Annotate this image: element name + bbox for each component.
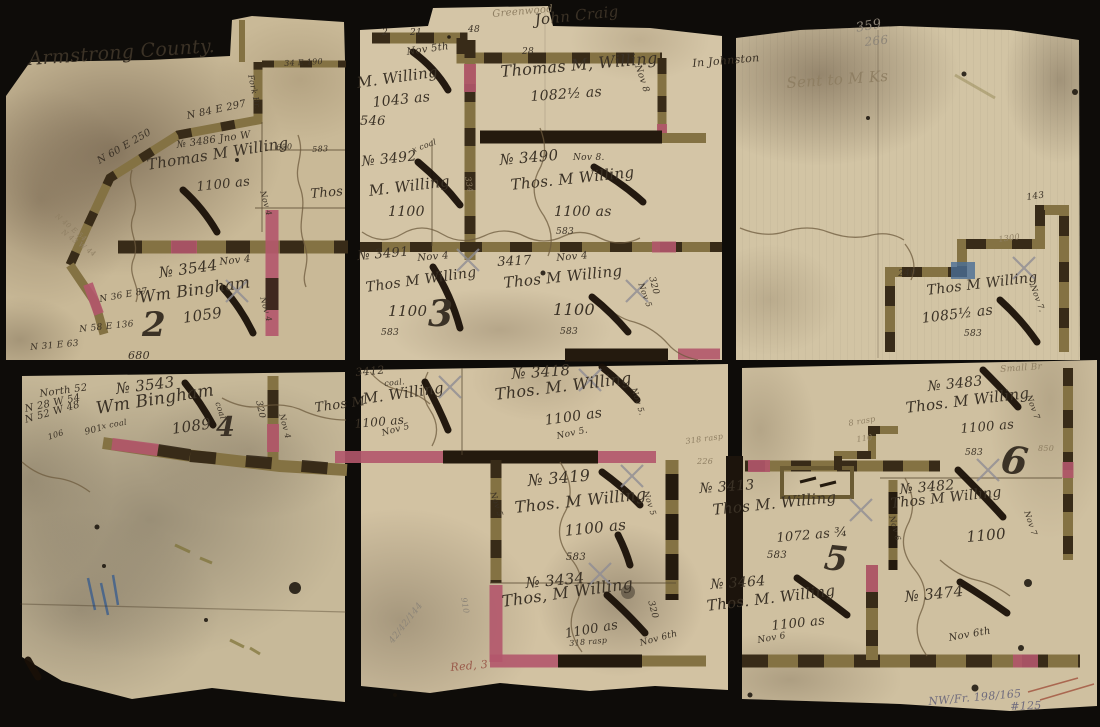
- distance-583-3491: 583: [381, 329, 399, 338]
- tract-3491-date: Nov 4: [417, 251, 449, 264]
- red-3-note: Red, 3: [450, 659, 488, 673]
- tract-3417-owner: Thos M Willing: [503, 264, 623, 291]
- tract-3419-no: № 3419: [527, 468, 591, 489]
- tract-3492-acres: 1100: [388, 205, 425, 219]
- tract-3418-owner: Thos. M. Willing: [494, 370, 632, 403]
- tract-3491-no: № 3491: [357, 246, 409, 263]
- tract-3544-date: Nov 4: [219, 255, 251, 268]
- tract-3413-owner: Thos M. Willing: [712, 490, 837, 518]
- bearing-n52w48: N 52 W 48: [24, 400, 81, 425]
- john-craig-name: John Craig: [534, 4, 619, 28]
- date-nov4-bl: Nov 4: [277, 413, 291, 440]
- distance-583-3413: 583: [767, 551, 787, 561]
- bearing-n43w44: N 43 W 44: [60, 229, 97, 258]
- date-nov7-vert-tr: Nov 7.: [1028, 284, 1045, 313]
- tract-3412-date: Nov 5: [381, 423, 411, 439]
- tick-28: 28: [522, 48, 534, 57]
- distance-650: 650: [276, 143, 293, 152]
- distance-583-3490: 583: [556, 228, 574, 237]
- tract-3413-acres: 1072 as ¾: [776, 526, 848, 545]
- distance-583-3483: 583: [965, 449, 983, 458]
- in-johnston-note: In Johnston: [692, 52, 760, 69]
- distance-320-bl: 320: [253, 400, 266, 420]
- tract-3434-acres: 1100 as: [564, 619, 619, 641]
- date-nov5-vert-3418: Nov 5.: [629, 387, 645, 416]
- pencil-359: 359: [855, 18, 883, 35]
- partial-thos: Thos: [310, 185, 344, 201]
- tract-3482-acres: 1100: [966, 527, 1007, 545]
- bearing-34e190: 34 E 190: [284, 58, 323, 68]
- tract-3482-no: № 3482: [899, 478, 955, 497]
- archive-note: NW/Fr. 198/165: [928, 688, 1022, 707]
- sheet-number-2: 2: [142, 308, 166, 342]
- tick-21: 21: [410, 29, 422, 38]
- bearing-n58e136: N 58 E 136: [79, 320, 134, 335]
- tract-1085-owner: Thos M Willing: [926, 270, 1038, 297]
- bearing-n28w54: N 28 W 54: [24, 393, 82, 415]
- tract-3434-no: № 3434: [525, 571, 585, 591]
- tract-3412-owner: M. Willing: [362, 381, 445, 407]
- coal-note-3412: coal.: [384, 378, 405, 388]
- sheet-number-3: 3: [428, 296, 453, 332]
- tract-3464-owner: Thos. M. Willing: [706, 583, 836, 614]
- fork-br-note: Fork Br.: [246, 74, 261, 110]
- distance-583-tl: 583: [312, 145, 329, 154]
- tract-1043-owner: M. Willing: [356, 65, 439, 91]
- tract-3417-date: Nov 4: [556, 251, 588, 264]
- tract-3434-owner: Thos, M Willing: [501, 576, 634, 610]
- sheet-number-6: 6: [999, 440, 1031, 481]
- distance-318-rasp-b: 318 rasp: [569, 637, 608, 648]
- date-nov4-vert-b: Nov 4: [258, 296, 272, 323]
- tract-3413-no: № 3413: [699, 478, 755, 496]
- distance-583-3417: 583: [560, 328, 578, 337]
- tract-3419-acres: 1100 as: [564, 518, 627, 539]
- county-title: Armstrong County.: [28, 37, 215, 69]
- pencil-266: 266: [864, 34, 889, 48]
- date-nov6-vert-br: Nov 6: [887, 515, 901, 542]
- tract-3544-acres: 1059: [182, 306, 223, 326]
- distance-546: 546: [360, 115, 386, 128]
- tract-3490-date: Nov 8.: [573, 154, 605, 163]
- date-nov4-vert-a: Nov 4: [258, 190, 272, 217]
- tract-1043-acres: 1043 as: [372, 90, 431, 110]
- tract-1085-acres: 1085½ as: [921, 303, 994, 326]
- distance-110: 110: [856, 434, 873, 444]
- distance-583-tr: 583: [964, 330, 982, 339]
- price-note: #125: [1010, 700, 1042, 712]
- tract-3482-owner: Thos M Willing: [890, 485, 1002, 511]
- distance-850: 850: [1038, 445, 1054, 453]
- tract-3543-owner: Wm Bingham: [95, 382, 215, 417]
- date-nov6th-3434: Nov 6th: [639, 630, 679, 649]
- distance-318-rasp: 318 rasp: [685, 433, 724, 446]
- tick-2: 2: [382, 29, 388, 38]
- date-nov5th: Nov 5th: [406, 42, 450, 58]
- bearing-n36e87: N 36 E 87: [99, 288, 148, 305]
- date-nov8-vert: Nov 8: [632, 64, 649, 94]
- distance-583-3419: 583: [566, 553, 586, 563]
- tract-3464-no: № 3464: [710, 574, 766, 592]
- tract-3486-no: № 3486 Jno W: [176, 131, 251, 151]
- greenwood-note: Greenwood: [492, 5, 553, 20]
- tract-3486-owner: Thomas M Willing: [146, 136, 289, 173]
- partial-thos-m: Thos M: [314, 395, 366, 415]
- distance-910-vert: 910: [459, 597, 470, 614]
- tract-3483-acres: 1100 as: [960, 418, 1015, 436]
- tract-3483-no: № 3483: [927, 374, 983, 394]
- distance-8-rasp: 8 rasp: [848, 415, 876, 428]
- tract-3464-acres: 1100 as: [771, 614, 826, 633]
- bearing-n40e54: N 40 E 54: [54, 213, 88, 243]
- coal-note-vert: coal: [213, 401, 226, 420]
- tract-1082-owner: Thomas M, Willing: [500, 50, 658, 80]
- tract-1082-acres: 1082½ as: [530, 85, 602, 104]
- distance-334-vert: 334: [463, 176, 474, 193]
- bearing-n84e297: N 84 E 297: [186, 99, 247, 121]
- tract-3544-no: № 3544: [158, 258, 218, 281]
- tract-3412-acres: 1100 as: [354, 414, 405, 430]
- bearing-n31e63: N 31 E 63: [30, 340, 79, 353]
- date-nov5-vert-r: Nov 5: [641, 490, 656, 517]
- tract-3419-owner: Thos. M Willing: [514, 486, 647, 516]
- distance-226: 226: [697, 458, 713, 466]
- tract-3492-no: № 3492: [361, 149, 417, 169]
- tract-3490-owner: Thos. M Willing: [510, 165, 635, 193]
- date-nov7-3483: Nov 7: [1024, 394, 1040, 421]
- tick-48: 48: [468, 26, 480, 35]
- tract-3417-acres: 1100: [553, 302, 595, 318]
- bearing-north52: North 52: [39, 383, 88, 400]
- tract-3543-no: № 3543: [115, 375, 175, 397]
- distance-143: 143: [1026, 191, 1045, 202]
- distance-901: 901: [84, 424, 104, 437]
- tract-3544-owner: Wm Bingham: [138, 274, 251, 305]
- tract-3418-date: Nov 5.: [556, 426, 589, 441]
- date-nov7-vert-br: Nov 7: [1022, 510, 1037, 537]
- tract-3464-date: Nov 6: [757, 632, 787, 646]
- tract-3474-no: № 3474: [904, 584, 964, 605]
- tract-3418-acres: 1100 as: [544, 406, 603, 428]
- faint-note: Sent to M Ks: [786, 69, 889, 91]
- tract-3491-owner: Thos M Willing: [365, 265, 477, 294]
- distance-1300: 1300: [998, 233, 1020, 244]
- coal-note-3492: x coal: [411, 138, 438, 154]
- sheet-number-5: 5: [822, 541, 849, 577]
- tract-3418-no: № 3418: [511, 363, 571, 382]
- survey-map: Armstrong County.N 84 E 297N 60 E 250№ 3…: [0, 0, 1100, 727]
- bearing-n60e250: N 60 E 250: [96, 128, 153, 167]
- tract-3490-no: № 3490: [499, 148, 559, 168]
- sheet-number-4: 4: [216, 414, 235, 441]
- tract-3491-acres: 1100: [388, 304, 427, 319]
- tract-3492-owner: M. Willing: [368, 174, 451, 199]
- distance-680: 680: [128, 350, 150, 361]
- tract-3490-acres: 1100 as: [554, 205, 612, 219]
- small-br-note: Small Br: [1000, 363, 1043, 375]
- tract-3543-acres: 1089: [171, 417, 212, 437]
- distance-320-3434: 320: [645, 600, 658, 620]
- handwritten-labels-layer: Armstrong County.N 84 E 297N 60 E 250№ 3…: [0, 0, 1100, 727]
- tract-3412-no: 3412: [355, 364, 385, 378]
- distance-106: 106: [47, 429, 65, 442]
- tract-3474-date: Nov 6th: [948, 627, 992, 644]
- tract-3483-owner: Thos. M Willing: [905, 386, 1030, 416]
- date-nov5-vert-tm: Nov 5: [636, 282, 652, 309]
- date-nov5-vert-l: Nov 5: [488, 491, 503, 518]
- tract-3417-no: 3417: [497, 254, 532, 269]
- distance-320-vert: 320: [646, 276, 659, 296]
- pencil-fraction: 42/42/144: [388, 601, 425, 645]
- coal-note-3543: x coal: [101, 419, 127, 431]
- tract-3486-acres: 1100 as: [196, 175, 251, 194]
- distance-240: 240: [898, 269, 917, 279]
